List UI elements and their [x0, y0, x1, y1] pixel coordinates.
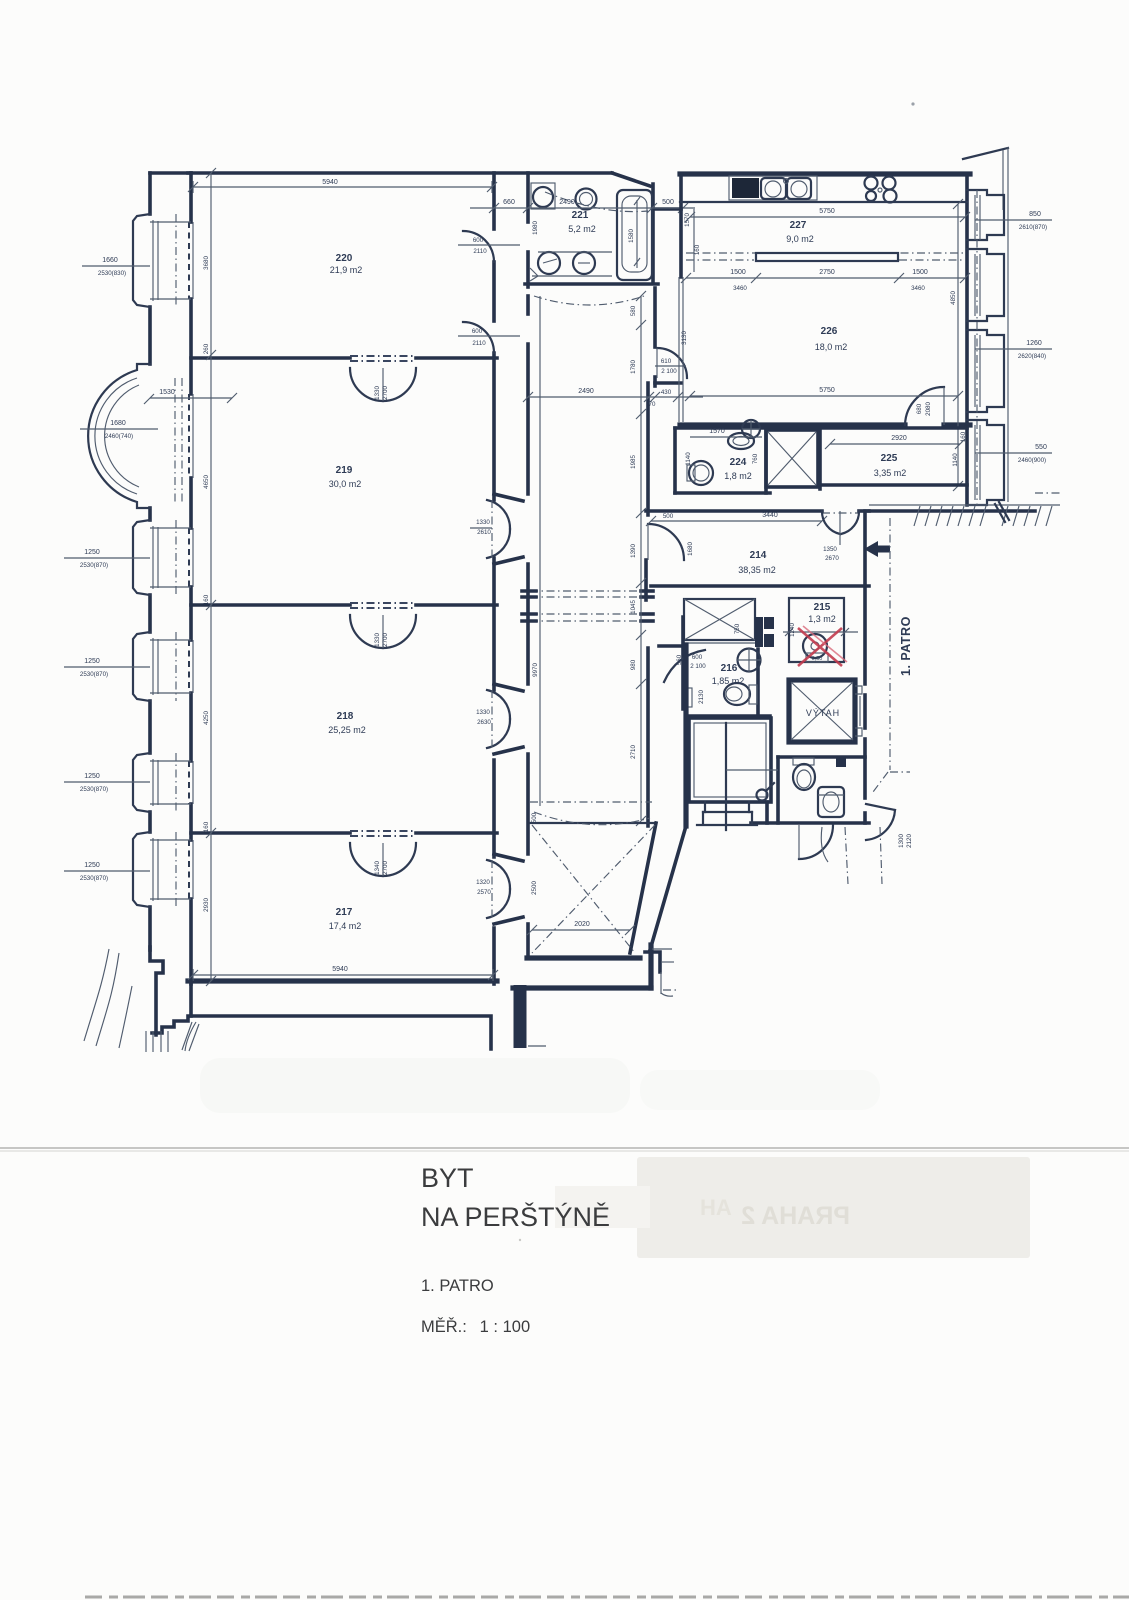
- svg-text:2530(870): 2530(870): [80, 671, 108, 678]
- svg-text:PRAHA 2: PRAHA 2: [741, 1202, 850, 1230]
- svg-text:1680: 1680: [110, 420, 126, 427]
- svg-text:550: 550: [1035, 444, 1047, 451]
- svg-text:216: 216: [721, 663, 738, 674]
- svg-text:3460: 3460: [733, 285, 747, 292]
- svg-text:226: 226: [821, 326, 838, 337]
- svg-text:218: 218: [337, 711, 354, 722]
- svg-text:215: 215: [814, 602, 831, 613]
- svg-text:1,8 m2: 1,8 m2: [724, 471, 752, 481]
- svg-text:21,9 m2: 21,9 m2: [330, 265, 363, 275]
- svg-text:2930: 2930: [203, 898, 210, 912]
- svg-text:4850: 4850: [950, 291, 957, 305]
- svg-text:2460(900): 2460(900): [1018, 457, 1046, 464]
- svg-text:1250: 1250: [84, 773, 100, 780]
- svg-text:2530(870): 2530(870): [80, 562, 108, 569]
- svg-text:1580: 1580: [628, 229, 635, 243]
- svg-text:VÝTAH: VÝTAH: [806, 708, 840, 718]
- svg-text:3440: 3440: [762, 512, 778, 519]
- svg-text:5750: 5750: [819, 387, 835, 394]
- svg-text:2700: 2700: [382, 861, 389, 875]
- svg-text:160: 160: [203, 594, 210, 605]
- svg-text:1680: 1680: [687, 542, 694, 556]
- svg-text:1240: 1240: [789, 623, 796, 637]
- svg-text:2110: 2110: [472, 340, 486, 347]
- svg-text:2630: 2630: [477, 719, 491, 726]
- svg-text:2080: 2080: [925, 402, 932, 416]
- svg-text:1250: 1250: [84, 658, 100, 665]
- svg-text:0,50: 0,50: [812, 656, 823, 662]
- svg-text:70: 70: [649, 401, 656, 408]
- svg-text:2670: 2670: [825, 555, 839, 562]
- svg-text:1330: 1330: [476, 709, 490, 716]
- svg-text:850: 850: [1029, 211, 1041, 218]
- svg-text:1500: 1500: [912, 269, 928, 276]
- svg-text:2490: 2490: [578, 388, 594, 395]
- svg-text:2 100: 2 100: [661, 368, 677, 375]
- svg-text:980: 980: [630, 659, 637, 670]
- svg-text:680: 680: [916, 403, 923, 414]
- svg-text:2530(870): 2530(870): [80, 875, 108, 882]
- svg-text:217: 217: [336, 907, 353, 918]
- svg-text:1390: 1390: [630, 544, 637, 558]
- svg-text:HA: HA: [700, 1195, 732, 1220]
- svg-text:221: 221: [572, 210, 589, 221]
- svg-text:30,0 m2: 30,0 m2: [329, 479, 362, 489]
- svg-text:500: 500: [663, 513, 674, 520]
- svg-text:1,3 m2: 1,3 m2: [808, 614, 836, 624]
- svg-text:660: 660: [503, 199, 515, 206]
- svg-text:1780: 1780: [630, 360, 637, 374]
- svg-text:1330: 1330: [374, 386, 381, 400]
- svg-text:2750: 2750: [819, 269, 835, 276]
- svg-text:9,0 m2: 9,0 m2: [786, 234, 814, 244]
- svg-text:750: 750: [734, 623, 741, 634]
- svg-text:220: 220: [336, 253, 353, 264]
- svg-text:1570: 1570: [684, 213, 691, 227]
- svg-text:2500: 2500: [531, 881, 538, 895]
- svg-text:BYT: BYT: [421, 1163, 474, 1193]
- svg-text:580: 580: [630, 305, 637, 316]
- svg-text:4650: 4650: [203, 475, 210, 489]
- svg-text:610: 610: [661, 358, 672, 365]
- svg-text:1500: 1500: [730, 269, 746, 276]
- svg-text:2710: 2710: [630, 745, 637, 759]
- svg-text:1140: 1140: [685, 452, 692, 466]
- svg-text:2490: 2490: [559, 199, 575, 206]
- svg-text:2460(740): 2460(740): [105, 433, 133, 440]
- svg-text:1985: 1985: [630, 455, 637, 469]
- svg-text:1980: 1980: [532, 221, 539, 235]
- svg-text:430: 430: [661, 389, 672, 396]
- svg-text:560: 560: [676, 654, 683, 665]
- svg-text:1250: 1250: [84, 862, 100, 869]
- svg-text:1340: 1340: [374, 861, 381, 875]
- svg-text:219: 219: [336, 465, 353, 476]
- svg-text:2620(840): 2620(840): [1018, 353, 1046, 360]
- svg-text:18,0 m2: 18,0 m2: [815, 342, 848, 352]
- svg-text:260: 260: [203, 343, 210, 354]
- svg-text:2530(830): 2530(830): [98, 270, 126, 277]
- svg-text:5,2 m2: 5,2 m2: [568, 224, 596, 234]
- svg-text:9970: 9970: [532, 663, 539, 677]
- svg-text:1250: 1250: [84, 549, 100, 556]
- svg-text:2020: 2020: [574, 921, 590, 928]
- svg-text:2570: 2570: [477, 889, 491, 896]
- svg-text:38,35 m2: 38,35 m2: [738, 565, 776, 575]
- svg-text:600: 600: [473, 237, 484, 244]
- svg-text:2 100: 2 100: [690, 663, 706, 670]
- svg-text:2700: 2700: [382, 633, 389, 647]
- svg-text:2110: 2110: [473, 248, 487, 255]
- svg-text:17,4 m2: 17,4 m2: [329, 921, 362, 931]
- svg-text:227: 227: [790, 220, 807, 231]
- svg-text:2920: 2920: [891, 435, 907, 442]
- svg-text:160: 160: [203, 821, 210, 832]
- svg-text:4250: 4250: [203, 711, 210, 725]
- svg-text:1,85 m2: 1,85 m2: [712, 676, 745, 686]
- svg-text:1300: 1300: [898, 834, 905, 848]
- svg-text:2700: 2700: [382, 386, 389, 400]
- svg-text:224: 224: [730, 457, 747, 468]
- svg-text:1140: 1140: [952, 453, 959, 467]
- svg-text:1330: 1330: [374, 633, 381, 647]
- svg-text:2120: 2120: [906, 834, 913, 848]
- svg-text:3680: 3680: [203, 256, 210, 270]
- svg-text:5750: 5750: [819, 208, 835, 215]
- svg-text:5940: 5940: [332, 966, 348, 973]
- svg-text:NA PERŠTÝNĚ: NA PERŠTÝNĚ: [421, 1201, 610, 1232]
- svg-text:600: 600: [472, 328, 483, 335]
- svg-text:1260: 1260: [1026, 340, 1042, 347]
- svg-text:225: 225: [881, 453, 898, 464]
- svg-text:2530(870): 2530(870): [80, 786, 108, 793]
- svg-text:3460: 3460: [911, 285, 925, 292]
- svg-text:1330: 1330: [476, 519, 490, 526]
- svg-text:2610(870): 2610(870): [1019, 224, 1047, 231]
- svg-text:500: 500: [531, 812, 538, 823]
- svg-text:760: 760: [752, 453, 759, 464]
- svg-text:1570: 1570: [709, 428, 725, 435]
- svg-text:1045: 1045: [630, 600, 637, 614]
- svg-text:3,35 m2: 3,35 m2: [874, 468, 907, 478]
- svg-text:1660: 1660: [102, 257, 118, 264]
- svg-text:600: 600: [692, 654, 703, 661]
- svg-text:5940: 5940: [322, 179, 338, 186]
- svg-text:3130: 3130: [681, 331, 688, 345]
- svg-text:500: 500: [662, 199, 674, 206]
- svg-text:1350: 1350: [823, 546, 837, 553]
- svg-text:1. PATRO: 1. PATRO: [899, 616, 913, 676]
- svg-text:25,25 m2: 25,25 m2: [328, 725, 366, 735]
- svg-text:1. PATRO: 1. PATRO: [421, 1277, 494, 1295]
- svg-text:214: 214: [750, 550, 767, 561]
- svg-text:1320: 1320: [476, 879, 490, 886]
- svg-text:2130: 2130: [698, 690, 705, 704]
- svg-text:MĚŘ.: 1 : 100: MĚŘ.: 1 : 100: [421, 1317, 530, 1336]
- svg-text:1530: 1530: [159, 389, 175, 396]
- svg-text:2610: 2610: [477, 529, 491, 536]
